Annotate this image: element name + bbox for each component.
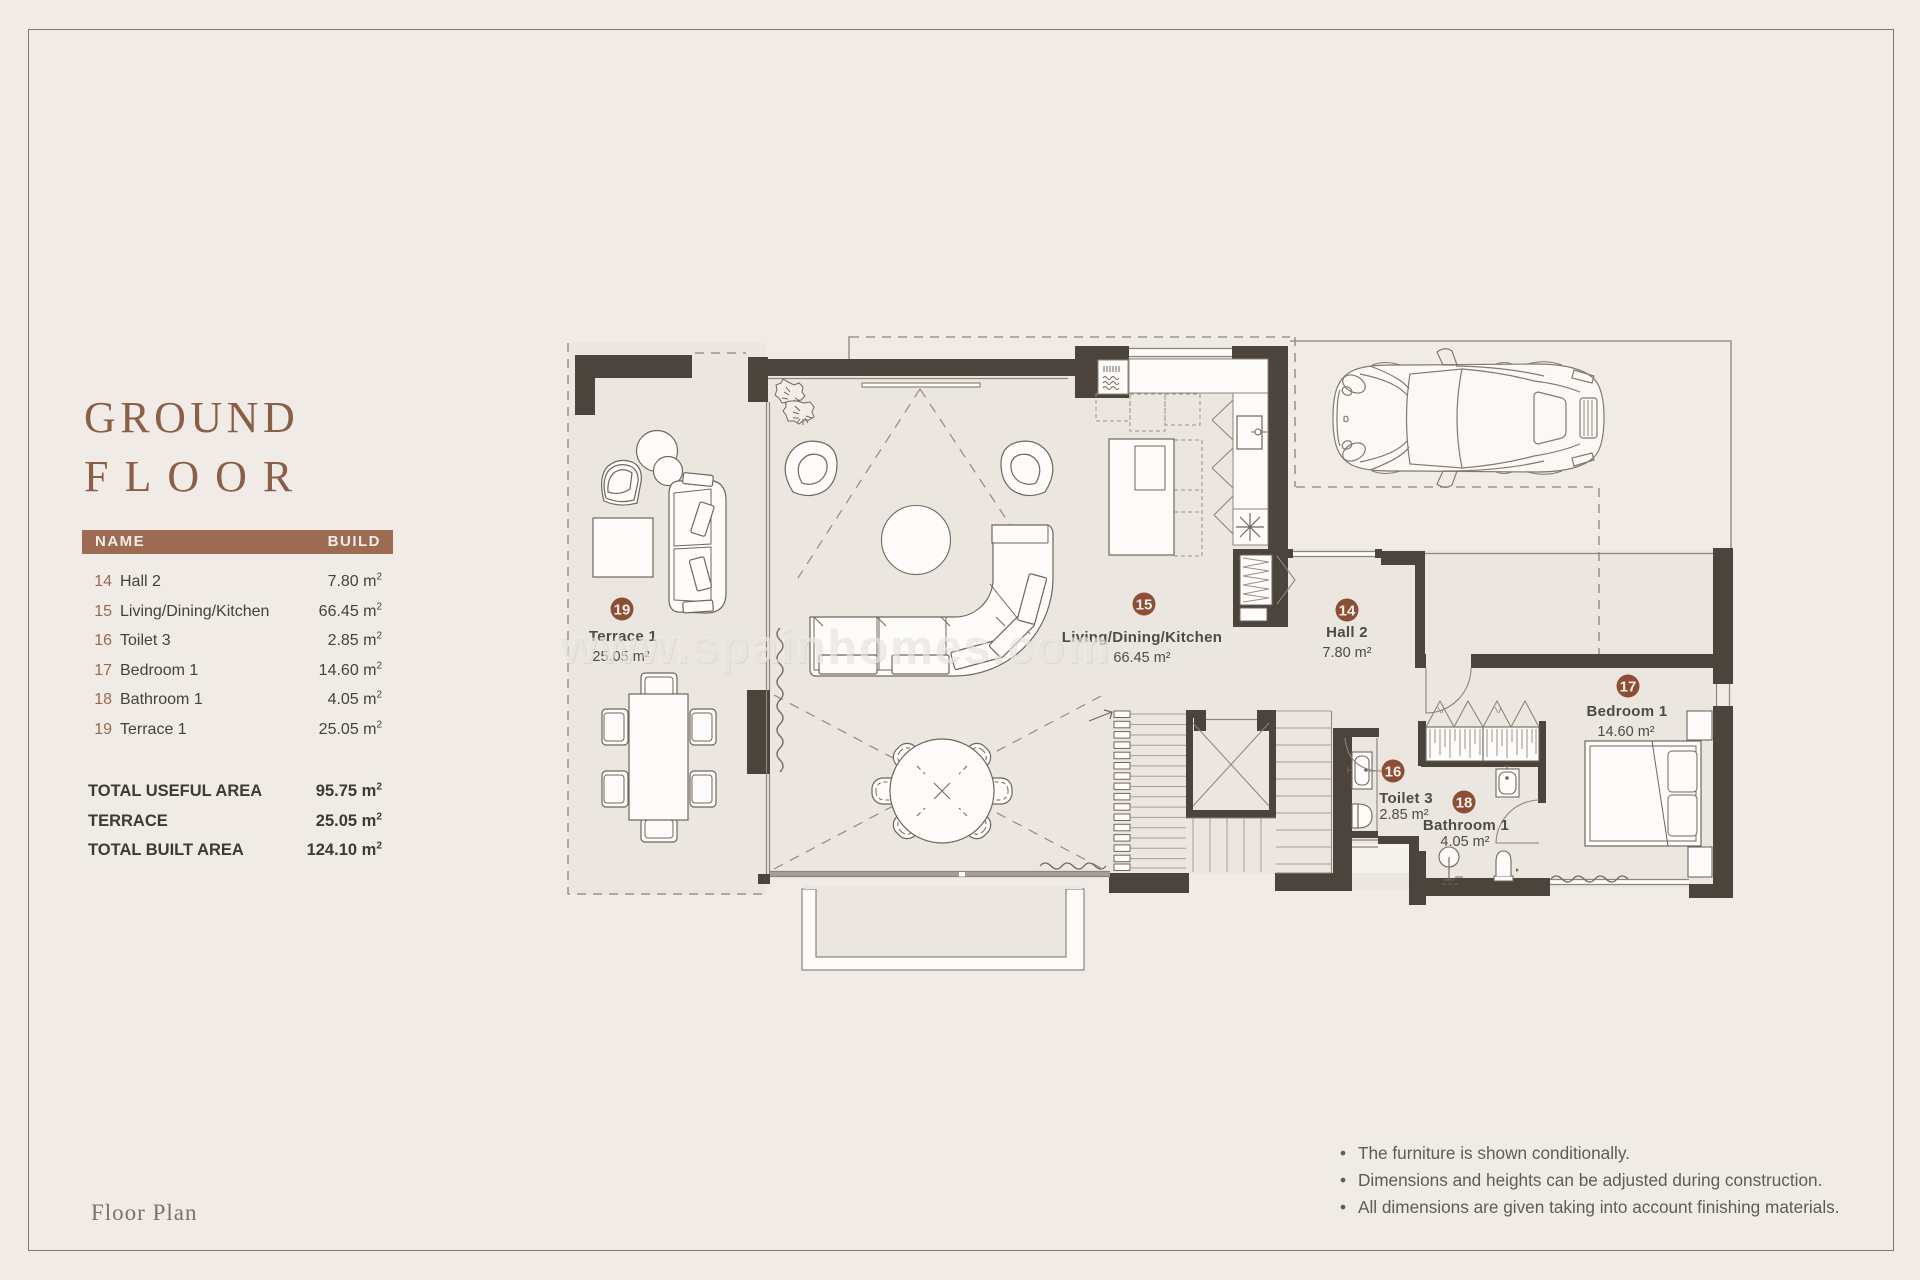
svg-text:18: 18	[1456, 795, 1473, 812]
svg-text:16: 16	[1385, 764, 1402, 781]
svg-text:7.80 m²: 7.80 m²	[1322, 645, 1371, 661]
svg-text:15: 15	[1136, 597, 1153, 614]
svg-text:Bedroom 1: Bedroom 1	[1586, 703, 1667, 720]
svg-text:Bathroom 1: Bathroom 1	[1423, 817, 1509, 834]
svg-text:19: 19	[614, 602, 631, 619]
svg-text:Toilet 3: Toilet 3	[1379, 790, 1433, 807]
svg-text:4.05 m²: 4.05 m²	[1440, 834, 1489, 850]
svg-text:17: 17	[1620, 679, 1637, 696]
svg-text:14: 14	[1339, 603, 1356, 620]
svg-text:14.60 m²: 14.60 m²	[1597, 724, 1654, 740]
svg-text:Hall 2: Hall 2	[1326, 624, 1368, 641]
svg-text:66.45 m²: 66.45 m²	[1113, 650, 1170, 666]
svg-text:2.85 m²: 2.85 m²	[1379, 807, 1428, 823]
